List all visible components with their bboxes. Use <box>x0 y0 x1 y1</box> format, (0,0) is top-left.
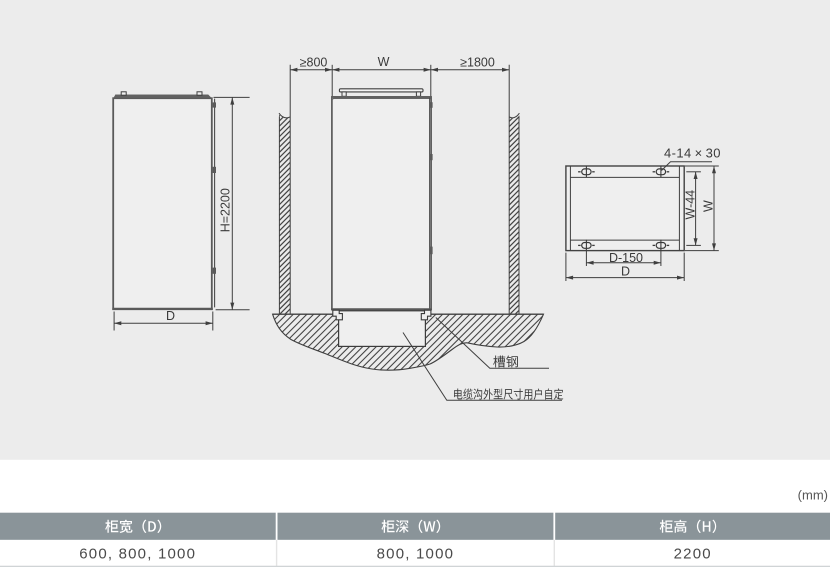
svg-text:W-44: W-44 <box>684 190 698 220</box>
svg-text:≥800: ≥800 <box>300 56 328 70</box>
svg-text:2200: 2200 <box>674 546 712 563</box>
svg-text:W: W <box>701 200 715 212</box>
svg-text:D: D <box>621 265 630 279</box>
svg-text:(mm): (mm) <box>798 488 828 503</box>
svg-text:≥1800: ≥1800 <box>460 56 495 70</box>
svg-text:W: W <box>378 55 390 69</box>
svg-text:600, 800, 1000: 600, 800, 1000 <box>79 546 196 563</box>
svg-text:800, 1000: 800, 1000 <box>377 546 455 563</box>
svg-text:H=2200: H=2200 <box>219 188 233 232</box>
svg-text:D-150: D-150 <box>609 251 643 265</box>
svg-text:4-14 × 30: 4-14 × 30 <box>664 146 721 161</box>
svg-text:D: D <box>166 309 175 323</box>
